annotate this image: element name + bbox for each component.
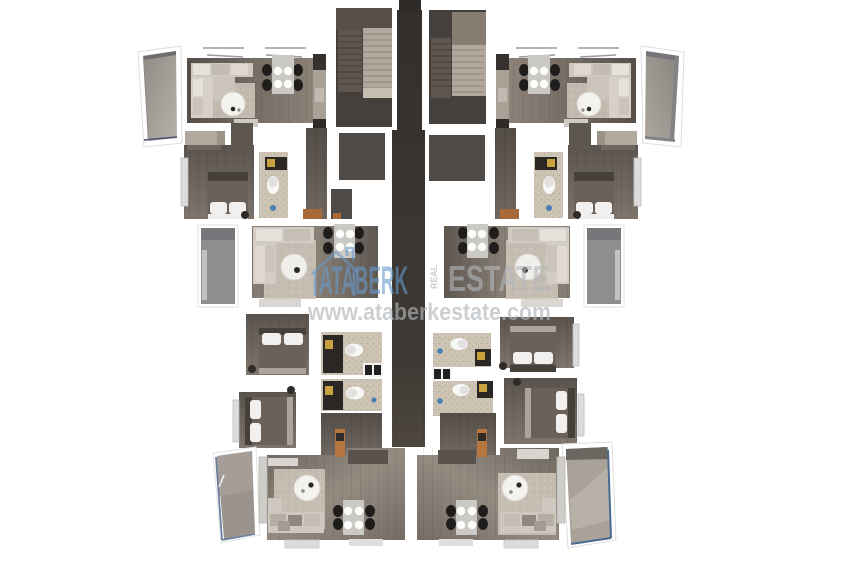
svg-text:www.ataberkestate.com: www.ataberkestate.com: [307, 299, 551, 326]
svg-text:ATABERK: ATABERK: [319, 259, 408, 303]
svg-text:REAL: REAL: [429, 265, 439, 289]
svg-text:ESTATE: ESTATE: [448, 258, 550, 299]
